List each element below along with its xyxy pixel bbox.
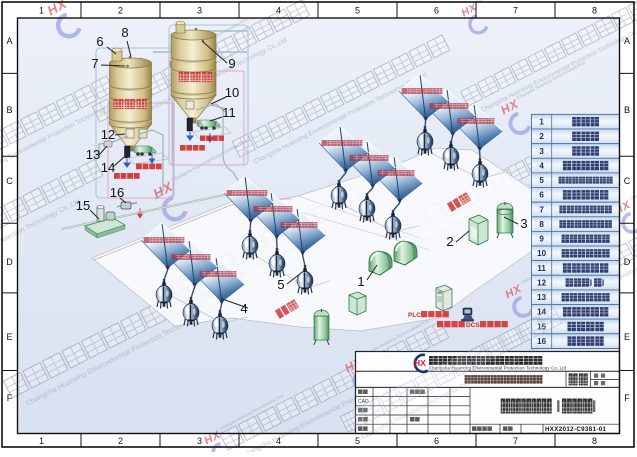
svg-text:10: 10 bbox=[225, 85, 239, 100]
svg-text:D: D bbox=[6, 257, 13, 267]
svg-text:6: 6 bbox=[539, 191, 544, 200]
svg-text:8: 8 bbox=[539, 220, 544, 229]
svg-text:4: 4 bbox=[539, 161, 544, 170]
svg-text:1: 1 bbox=[39, 6, 44, 16]
svg-text:1: 1 bbox=[39, 436, 44, 446]
svg-text:A: A bbox=[624, 36, 630, 46]
svg-text:D: D bbox=[624, 257, 631, 267]
svg-text:16: 16 bbox=[537, 337, 546, 346]
svg-text:13: 13 bbox=[86, 147, 100, 162]
svg-text:1: 1 bbox=[539, 118, 544, 127]
svg-text:11: 11 bbox=[537, 264, 546, 273]
svg-text:3: 3 bbox=[197, 436, 202, 446]
svg-text:13: 13 bbox=[537, 293, 546, 302]
svg-text:7: 7 bbox=[539, 205, 544, 214]
svg-text:7: 7 bbox=[91, 56, 98, 71]
svg-text:E: E bbox=[624, 332, 630, 342]
svg-text:4: 4 bbox=[276, 436, 281, 446]
svg-text:3: 3 bbox=[520, 216, 527, 231]
svg-text:12: 12 bbox=[537, 278, 546, 287]
svg-text:HX: HX bbox=[414, 358, 426, 368]
svg-text:B: B bbox=[624, 105, 630, 115]
svg-text:1: 1 bbox=[357, 274, 364, 289]
svg-text:16: 16 bbox=[110, 185, 124, 200]
svg-text:7: 7 bbox=[513, 6, 518, 16]
svg-text:8: 8 bbox=[121, 25, 128, 40]
svg-text:10: 10 bbox=[537, 249, 546, 258]
svg-text:HXX2012-C9381-01: HXX2012-C9381-01 bbox=[545, 426, 607, 433]
svg-text:2: 2 bbox=[539, 132, 544, 141]
svg-text:6: 6 bbox=[96, 34, 103, 49]
svg-text:12: 12 bbox=[101, 127, 115, 142]
svg-text:5: 5 bbox=[355, 6, 360, 16]
svg-text:8: 8 bbox=[592, 436, 597, 446]
svg-text:6: 6 bbox=[434, 436, 439, 446]
svg-text:15: 15 bbox=[76, 198, 90, 213]
svg-text:2: 2 bbox=[446, 234, 453, 249]
svg-text:5: 5 bbox=[355, 436, 360, 446]
svg-text:5: 5 bbox=[277, 277, 284, 292]
svg-text:7: 7 bbox=[513, 436, 518, 446]
svg-text:2: 2 bbox=[118, 6, 123, 16]
svg-text:E: E bbox=[6, 332, 12, 342]
svg-text:A: A bbox=[6, 36, 12, 46]
svg-text:9: 9 bbox=[228, 56, 235, 71]
svg-text:C: C bbox=[624, 176, 631, 186]
svg-text:4: 4 bbox=[240, 301, 247, 316]
svg-text:14: 14 bbox=[101, 160, 115, 175]
svg-text:11: 11 bbox=[222, 105, 236, 120]
svg-text:8: 8 bbox=[592, 6, 597, 16]
svg-text:3: 3 bbox=[539, 147, 544, 156]
svg-text:4: 4 bbox=[276, 6, 281, 16]
svg-text:B: B bbox=[6, 105, 12, 115]
svg-text:2: 2 bbox=[118, 436, 123, 446]
svg-text:3: 3 bbox=[197, 6, 202, 16]
svg-text:9: 9 bbox=[539, 235, 544, 244]
svg-text:5: 5 bbox=[539, 176, 544, 185]
svg-text:6: 6 bbox=[434, 6, 439, 16]
svg-text:PLC: PLC bbox=[408, 312, 421, 319]
svg-text:DCS: DCS bbox=[466, 322, 480, 329]
svg-text:F: F bbox=[7, 393, 13, 403]
svg-text:C: C bbox=[6, 176, 13, 186]
svg-text:F: F bbox=[624, 393, 630, 403]
